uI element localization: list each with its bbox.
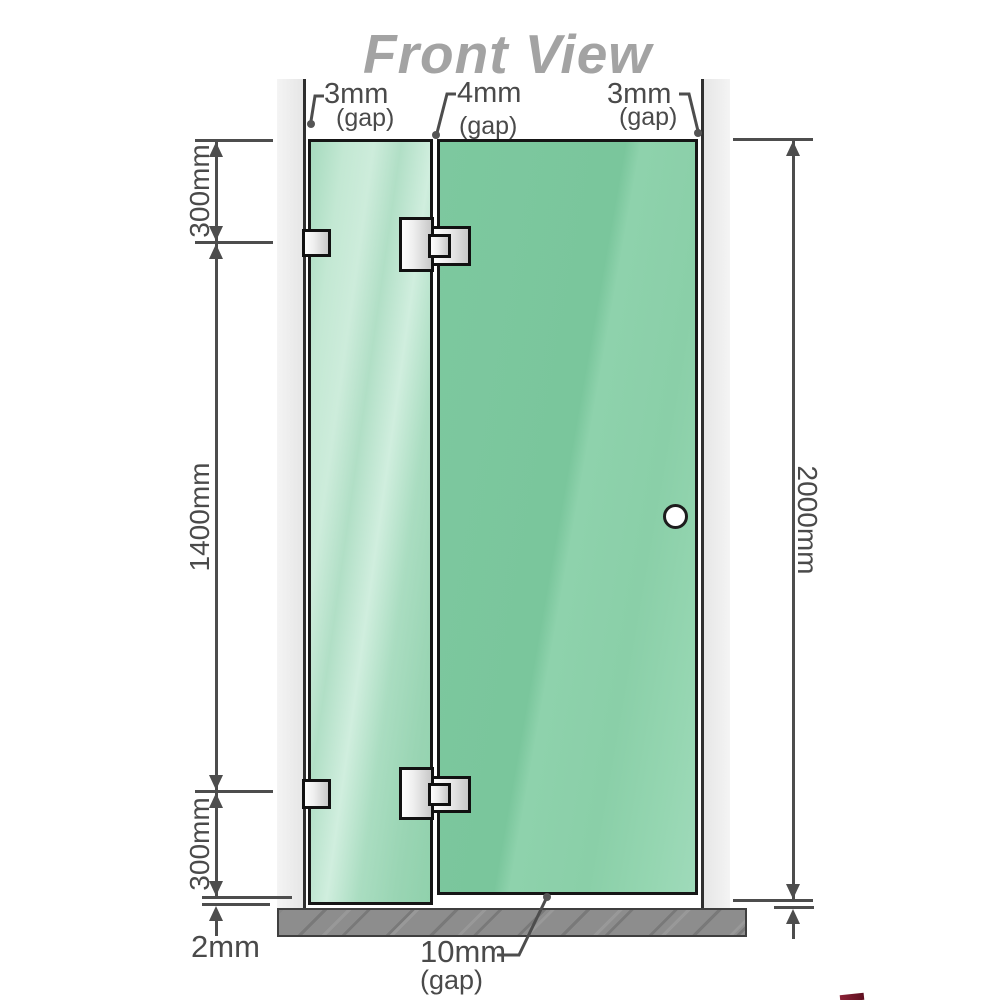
tick-top (195, 139, 273, 142)
gap-label-2mm: 2mm (191, 931, 260, 962)
floor-base (277, 908, 747, 937)
gap-top-left-suffix: (gap) (336, 104, 394, 133)
tick-right-glass-bottom (733, 899, 813, 902)
wall-bracket-bottom (302, 779, 331, 809)
door-knob (663, 504, 688, 529)
dim-label-300-bottom: 300mm (184, 797, 216, 890)
hinge-bottom-knuckle (428, 783, 451, 806)
wall-bracket-top (302, 229, 331, 257)
dim-label-1400: 1400mm (184, 463, 216, 572)
arrowhead (209, 775, 223, 790)
tick-glass-bottom (202, 896, 292, 899)
arrowhead-2mm (209, 906, 223, 921)
door-glass-panel (437, 139, 698, 895)
wall-channel-right (701, 79, 730, 908)
arrowhead (209, 244, 223, 259)
arrowhead (786, 884, 800, 899)
dim-label-300-top: 300mm (184, 144, 216, 237)
front-view-diagram: Front View 300mm 1400mm 300mm 2mm 2000 (0, 0, 1000, 1000)
tick-300-1400 (195, 241, 273, 244)
hinge-top-knuckle (428, 234, 451, 258)
gap-top-middle-suffix: (gap) (459, 112, 517, 141)
dim-label-2000: 2000mm (791, 466, 823, 575)
tick-right-top (733, 138, 813, 141)
gap-bottom-door-value: 10mm (420, 936, 506, 967)
dimline-right-2mm (792, 924, 795, 939)
gap-top-middle-value: 4mm (457, 77, 521, 110)
gap-bottom-door-suffix: (gap) (420, 967, 506, 994)
arrowhead (786, 141, 800, 156)
watermark-fragment (840, 993, 865, 1000)
tick-1400-300 (195, 790, 273, 793)
gap-bottom-door-label: 10mm (gap) (420, 936, 506, 994)
gap-top-right-suffix: (gap) (619, 103, 677, 132)
arrowhead-right-2mm (786, 909, 800, 924)
